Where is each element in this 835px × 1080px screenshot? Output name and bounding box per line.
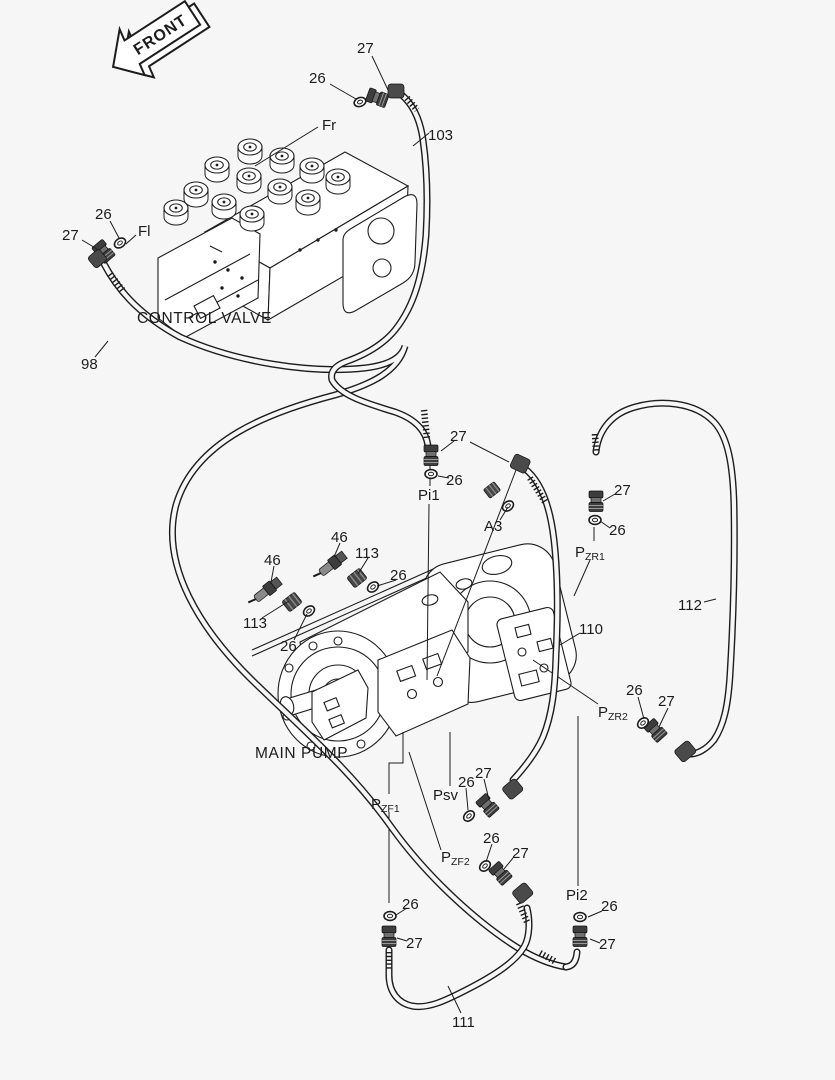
- callout-27-psv: 27: [475, 765, 492, 782]
- elbow-pzf2: [511, 882, 534, 904]
- fitting-group-a3: [483, 453, 531, 513]
- sensor-46-lower: [246, 576, 283, 609]
- hose-111-pzf1-to-pzf2: [389, 903, 529, 1007]
- diagram-canvas: FRONT: [0, 0, 835, 1080]
- fitting-group-pzr1: [589, 491, 603, 524]
- component-label-control-valve: CONTROL VALVE: [137, 310, 272, 327]
- port-label-pzr2: PZR2: [598, 704, 628, 723]
- nipple-pi2: [573, 926, 587, 947]
- nipple-pzf2: [488, 861, 512, 886]
- adapter-a3: [483, 481, 501, 498]
- callout-26-pi1: 26: [446, 472, 463, 489]
- callout-26-pi2: 26: [601, 898, 618, 915]
- callout-26-fr: 26: [309, 70, 326, 87]
- elbow-pzr2: [674, 740, 697, 763]
- front-direction-arrow: FRONT: [98, 0, 216, 93]
- callout-26-pzf2: 26: [483, 830, 500, 847]
- pzr2-main: P: [598, 704, 608, 721]
- hose-98-end-pi2: [566, 952, 577, 967]
- fitting-group-pzf1: [382, 912, 396, 947]
- oring-pzr1: [589, 516, 601, 525]
- hose-label-103: 103: [428, 127, 453, 144]
- callout-26-pzr1: 26: [609, 522, 626, 539]
- pzr1-sub: ZR1: [585, 551, 605, 563]
- hose-label-98: 98: [81, 356, 98, 373]
- callout-113-lower: 113: [243, 615, 267, 632]
- nipple-pzr1: [589, 491, 603, 512]
- callout-27-pzf1: 27: [406, 935, 423, 952]
- port-label-pi1: Pi1: [418, 487, 440, 504]
- port-label-psv: Psv: [433, 787, 459, 804]
- callout-27-fl: 27: [62, 227, 79, 244]
- oring-pzf1: [384, 912, 396, 921]
- callout-27-pzf2: 27: [512, 845, 529, 862]
- port-label-pzf2: PZF2: [441, 849, 470, 868]
- hose-label-112: 112: [678, 597, 702, 614]
- port-label-a3: A3: [484, 518, 502, 535]
- pzf1-main: P: [371, 796, 381, 813]
- fitting-group-pi2: [573, 913, 587, 947]
- nipple-pi1: [424, 445, 438, 466]
- callout-27-fr: 27: [357, 40, 374, 57]
- callout-26-pzr2: 26: [626, 682, 643, 699]
- control-valve-illustration: [158, 139, 417, 338]
- pzf2-sub: ZF2: [451, 856, 470, 868]
- pzf1-sub: ZF1: [381, 803, 400, 815]
- oring-fl: [113, 236, 128, 250]
- pzf2-main: P: [441, 849, 451, 866]
- callout-26-upper: 26: [390, 567, 407, 584]
- callout-27-pi1: 27: [450, 428, 467, 445]
- hose-label-110: 110: [579, 621, 603, 638]
- port-label-pi2: Pi2: [566, 887, 588, 904]
- port-label-pzf1: PZF1: [371, 796, 400, 815]
- nipple-psv: [475, 793, 499, 818]
- component-label-main-pump: MAIN PUMP: [255, 745, 348, 762]
- callout-27-pi2: 27: [599, 936, 616, 953]
- oring-upper: [366, 580, 381, 594]
- callout-26-psv: 26: [458, 774, 475, 791]
- pzr1-main: P: [575, 544, 585, 561]
- port-label-fl: Fl: [138, 223, 151, 240]
- connector-113-upper: [347, 568, 368, 588]
- oring-pi1: [425, 470, 437, 479]
- parts-diagram-page: FRONT: [0, 0, 835, 1080]
- nipple-pzf1: [382, 926, 396, 947]
- callout-26-pzf1: 26: [402, 896, 419, 913]
- oring-fr: [353, 96, 367, 108]
- port-label-pzr1: PZR1: [575, 544, 605, 563]
- port-label-fr: Fr: [322, 117, 336, 134]
- pzr2-sub: ZR2: [608, 711, 628, 723]
- hose-label-111: 111: [452, 1014, 475, 1031]
- oring-pi2: [574, 913, 586, 922]
- oring-a3: [501, 499, 516, 513]
- oring-psv: [462, 809, 477, 824]
- fitting-group-pzr2: [636, 716, 697, 763]
- fitting-group-pi1: [424, 445, 438, 478]
- elbow-psv: [501, 778, 524, 800]
- oring-lower: [302, 604, 317, 618]
- callout-46-lower: 46: [264, 552, 281, 569]
- sensor-group-lower: [246, 576, 317, 618]
- callout-26-fl: 26: [95, 206, 112, 223]
- connector-113-lower: [282, 592, 303, 612]
- callout-27-pzr1: 27: [614, 482, 631, 499]
- callout-26-lower: 26: [280, 638, 297, 655]
- elbow-fr: [388, 84, 404, 98]
- callout-113-upper: 113: [355, 545, 379, 562]
- nipple-fr: [365, 88, 389, 108]
- fitting-group-pzf2: [478, 859, 534, 905]
- sensor-46-upper: [311, 550, 348, 583]
- callout-46-upper: 46: [331, 529, 348, 546]
- callout-27-pzr2: 27: [658, 693, 675, 710]
- fitting-group-fr: [353, 84, 404, 108]
